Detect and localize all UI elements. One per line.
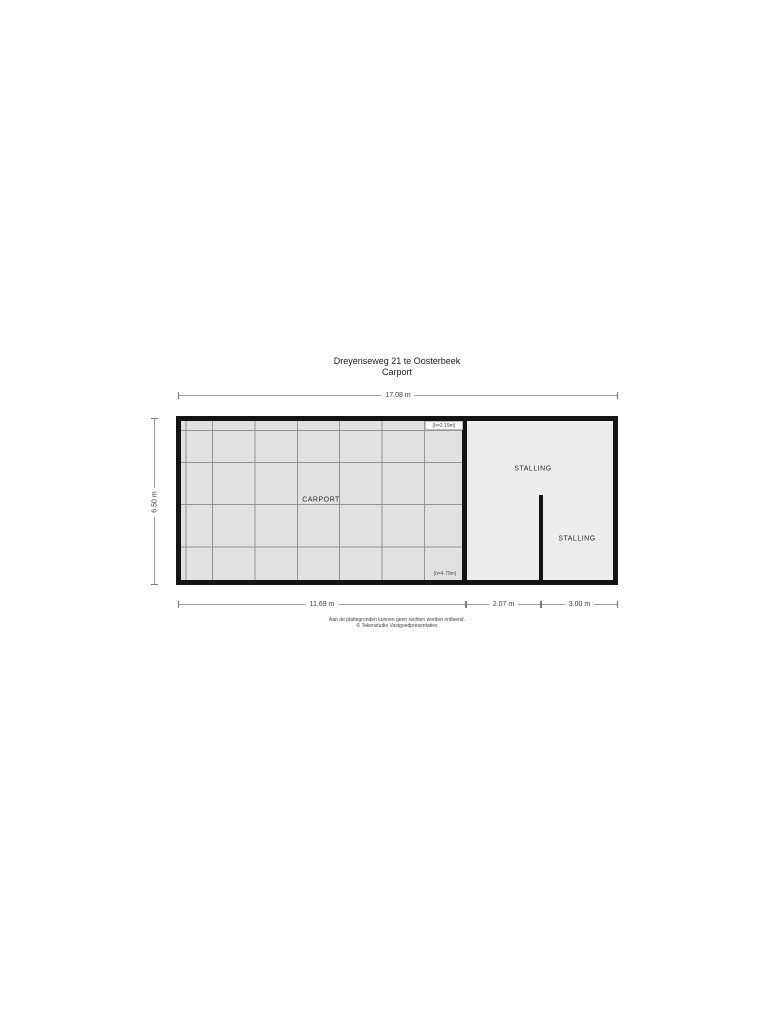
dimension-left-height: 6.50 m: [150, 418, 159, 585]
dimension-label-left: 6.50 m: [150, 487, 159, 516]
room-label-carport: CARPORT: [302, 497, 340, 504]
room-label-stalling-1: STALLING: [514, 466, 551, 473]
dimension-tick: [151, 584, 158, 585]
dimension-tick: [178, 392, 179, 399]
page-subtitle: Carport: [176, 367, 618, 378]
room-label-stalling-2: STALLING: [558, 536, 595, 543]
dimension-label-bottom-3: 3.00 m: [565, 600, 594, 609]
dimension-label-top: 17.08 m: [381, 391, 414, 400]
dimension-tick: [617, 601, 618, 608]
dimension-bottom-carport: 11.69 m: [178, 600, 466, 609]
dimension-bottom-stalling-left: 2.07 m: [466, 600, 541, 609]
dimension-label-bottom-2: 2.07 m: [489, 600, 518, 609]
height-note-bottom: (h=4.79m): [427, 570, 463, 579]
floorplan-page: Dreyenseweg 21 te Oosterbeek Carport 17.…: [0, 0, 768, 1024]
page-title: Dreyenseweg 21 te Oosterbeek: [176, 356, 618, 367]
floorplan: CARPORT STALLING STALLING (h=2.19m) (h=4…: [176, 416, 618, 585]
dimension-tick: [541, 601, 542, 608]
dimension-tick: [466, 601, 467, 608]
height-note-top: (h=2.19m): [425, 421, 463, 430]
footer: Aan de plattegronden kunnen geen rechten…: [176, 617, 618, 629]
dimension-bottom-stalling-right: 3.00 m: [541, 600, 618, 609]
footer-copyright: © Tekenstudio Vastgoedpresentaties: [176, 623, 618, 629]
title-block: Dreyenseweg 21 te Oosterbeek Carport: [176, 356, 618, 378]
dimension-tick: [151, 418, 158, 419]
dimension-label-bottom-1: 11.69 m: [306, 600, 339, 609]
dimension-tick: [178, 601, 179, 608]
dimension-top-total: 17.08 m: [178, 391, 618, 400]
stalling-partition-wall: [539, 495, 543, 580]
dimension-tick: [617, 392, 618, 399]
